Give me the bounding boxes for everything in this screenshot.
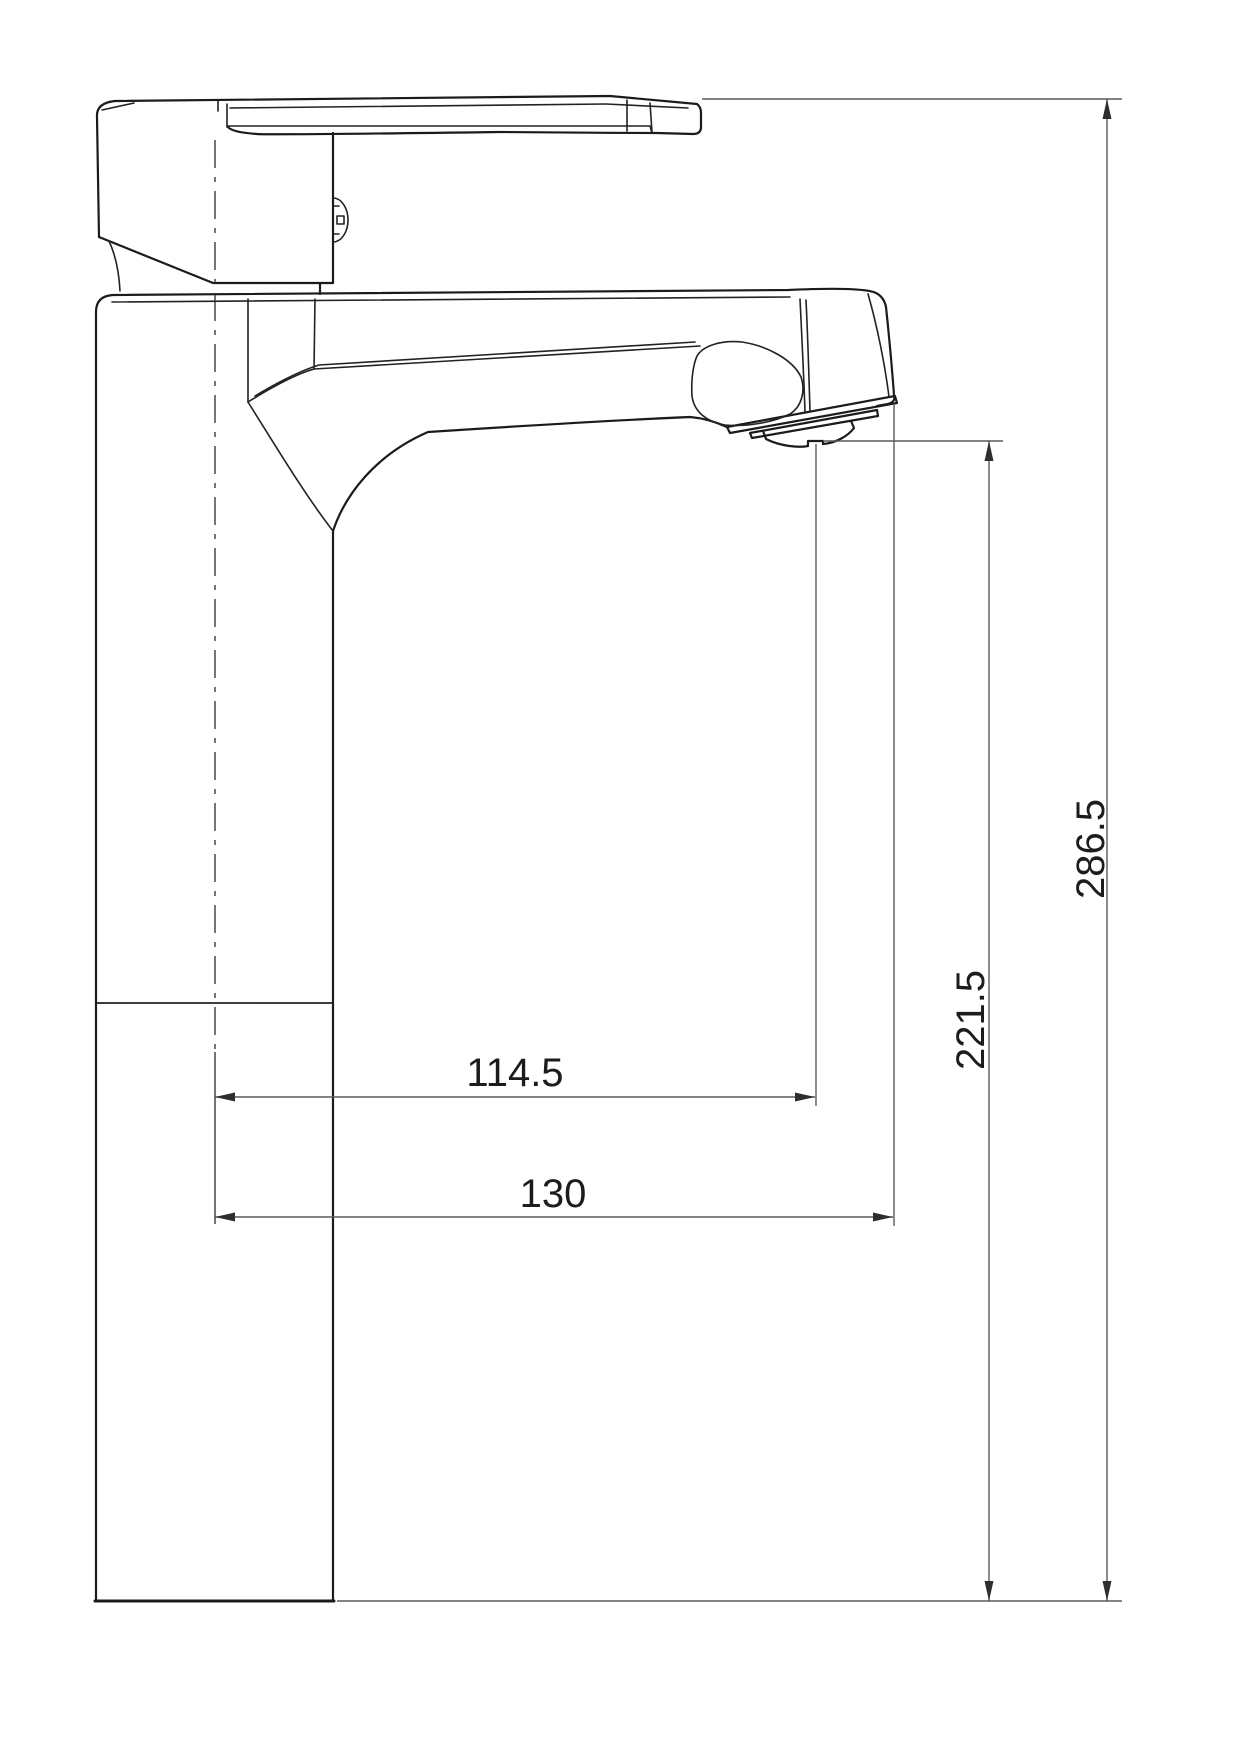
body-silhouette — [96, 289, 894, 1601]
arrow-down-icon — [1103, 1581, 1112, 1601]
dimension-labels: 286.5 221.5 114.5 130 — [466, 799, 1113, 1216]
label-spout-reach: 114.5 — [466, 1051, 563, 1095]
arrow-left-icon — [215, 1093, 235, 1102]
faucet-technical-drawing: 286.5 221.5 114.5 130 — [0, 0, 1240, 1755]
arrow-up-icon — [1103, 99, 1112, 119]
faucet-detail-lines — [97, 100, 889, 1003]
dimension-arrows — [215, 99, 1112, 1601]
label-outlet-height: 221.5 — [949, 970, 993, 1070]
spout-underside — [333, 417, 727, 1601]
arrow-down-icon — [985, 1581, 994, 1601]
drawing-canvas: 286.5 221.5 114.5 130 — [0, 0, 1240, 1755]
block-corner-arc — [109, 241, 120, 291]
aerator — [727, 396, 897, 447]
faucet-outline — [95, 96, 897, 1601]
dimensions — [215, 99, 1122, 1601]
spout-face-creases — [800, 294, 889, 412]
label-overall-height: 286.5 — [1069, 799, 1113, 899]
spout-outlet-pocket — [692, 342, 803, 426]
aerator-ring-2 — [750, 410, 878, 438]
handle-block — [99, 133, 333, 294]
flange-inner-line — [112, 297, 790, 302]
label-overall-reach: 130 — [520, 1172, 587, 1216]
arrow-left-icon — [215, 1213, 235, 1222]
set-screw-detail — [333, 198, 348, 242]
spout-root-contour — [248, 299, 700, 531]
handle-lever-details — [102, 100, 688, 133]
arrow-right-icon — [795, 1093, 815, 1102]
handle-lever — [97, 96, 701, 237]
arrow-right-icon — [873, 1213, 893, 1222]
arrow-up-icon — [985, 441, 994, 461]
